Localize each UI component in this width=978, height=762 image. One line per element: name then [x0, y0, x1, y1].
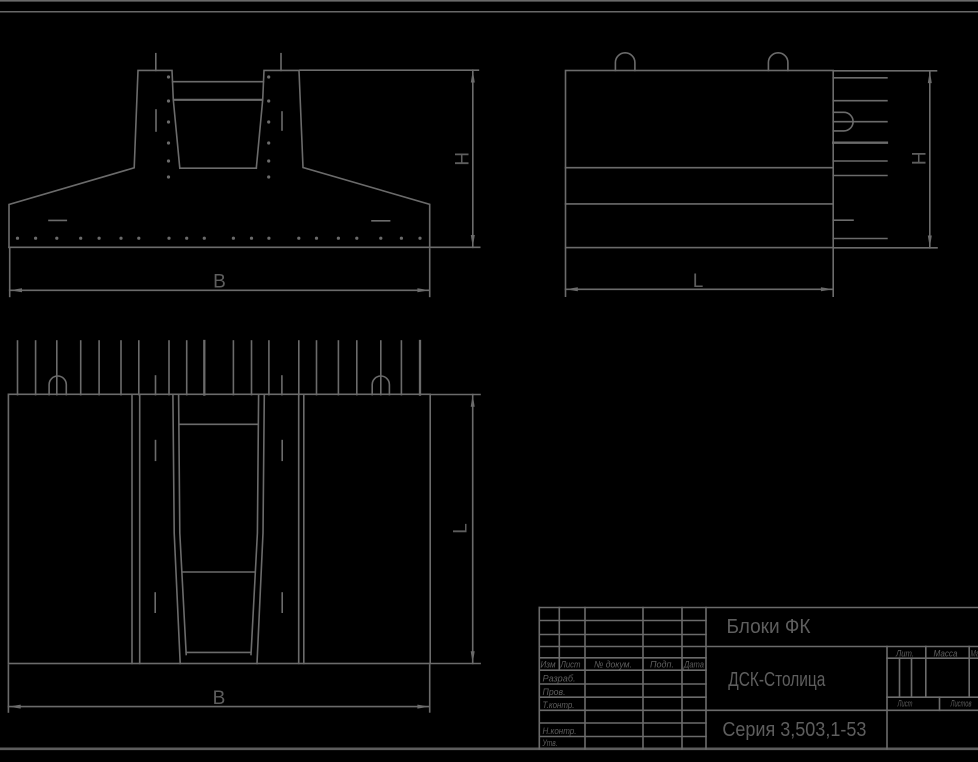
svg-text:Подп.: Подп. — [650, 660, 674, 671]
svg-text:Н.контр.: Н.контр. — [543, 726, 577, 737]
svg-text:Масштаб: Масштаб — [971, 648, 978, 659]
svg-text:L: L — [451, 523, 472, 534]
svg-text:Лист: Лист — [897, 698, 913, 709]
svg-text:Разраб.: Разраб. — [543, 674, 576, 685]
svg-text:H: H — [453, 152, 474, 166]
svg-text:Серия 3,503,1-53: Серия 3,503,1-53 — [722, 719, 866, 741]
svg-text:H: H — [910, 151, 931, 165]
svg-text:B: B — [213, 688, 226, 709]
svg-text:Т.контр.: Т.контр. — [543, 700, 575, 711]
svg-text:B: B — [213, 272, 226, 293]
svg-text:L: L — [693, 271, 704, 292]
svg-text:№ докум.: № докум. — [594, 660, 632, 671]
svg-text:Листов: Листов — [950, 698, 972, 709]
svg-text:Пров.: Пров. — [543, 687, 566, 698]
svg-text:Лит.: Лит. — [895, 648, 914, 659]
svg-text:Дата: Дата — [683, 660, 704, 671]
svg-text:Масса: Масса — [934, 648, 958, 659]
svg-text:ДСК-Столица: ДСК-Столица — [728, 669, 826, 691]
svg-text:Утв.: Утв. — [542, 738, 558, 749]
svg-text:Лист: Лист — [560, 660, 581, 671]
svg-text:Блоки ФК: Блоки ФК — [727, 616, 811, 638]
svg-text:Изм: Изм — [541, 660, 556, 671]
